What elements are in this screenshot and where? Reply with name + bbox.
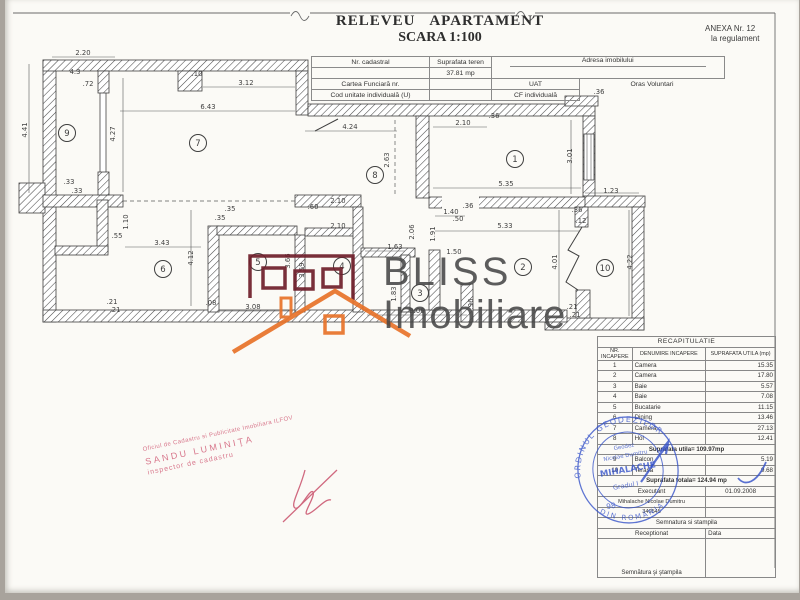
room-number: 6 [160,265,165,275]
room-number: 9 [64,129,69,139]
table-row: 1Camera15.35 [598,360,776,371]
dimension-label: .33 [64,178,75,186]
nr-cadastral-value [312,68,430,79]
title-block: RELEVEU APARTAMENT SCARA 1:100 [310,13,570,46]
dimension-label: .10 [192,70,203,78]
scanned-sheet: 2.204.3.724.414.273.126.43.10.33.334.242… [5,0,799,593]
dimension-label: .12 [576,217,587,225]
dimension-label: .96 [467,299,475,310]
table-row: 8Hol12.41 [598,434,776,445]
dimension-label: .36 [489,112,500,120]
dimension-label: 2.06 [408,224,416,239]
dimension-label: .33 [72,187,83,195]
label-uat: UAT [492,79,580,90]
wall-segment [55,246,108,255]
wall-segment [98,172,109,195]
wall-segment [295,195,361,207]
dimension-label: 2.10 [455,119,470,127]
door-swing [315,119,338,131]
room-number: 10 [600,264,611,274]
wall-segment [429,250,440,310]
cartea-funciara-value [430,79,492,90]
cf-individuala-value [580,90,725,101]
document-title: RELEVEU APARTAMENT [310,13,570,30]
dimension-label: 4.27 [109,126,117,141]
col-header-denumire: DENUMIRE INCAPERE [632,347,706,360]
label-nr-cadastral: Nr. cadastral [312,57,430,68]
wall-segment [98,71,109,93]
wall-segment [43,195,123,207]
dimension-label: 6.43 [200,103,215,111]
table-row: Suprafata utila= 109.97mp [598,444,776,455]
dimension-label: 1.23 [603,187,618,195]
table-row: 5Bucatarie11.15 [598,402,776,413]
table-row: Mihalache Nicolae Dumitru [598,497,776,508]
wall-segment [296,71,308,115]
anexa-line2: la regulament [705,34,785,44]
dimension-label: 3.08 [245,303,260,311]
dimension-label: 3.43 [154,239,169,247]
uat-value: Oras Voluntari [580,79,725,90]
table-row: 3Baie5.57 [598,381,776,392]
dimension-label: .36 [463,202,474,210]
cod-unitate-value [430,90,492,101]
dimension-label: 2.10 [330,222,345,230]
dimension-label: 1.63 [387,243,402,251]
dimension-label: .36 [572,206,583,214]
label-cartea-funciara: Cartea Funciară nr. [312,79,430,90]
room-number: 5 [255,258,260,268]
dimension-label: 2.63 [383,152,391,167]
recap-table: RECAPITULATIE NR. INCAPERE DENUMIRE INCA… [597,336,776,578]
dimension-label: .35 [225,205,236,213]
room-numbers: 12345678910 [59,125,614,302]
dimension-label: 3.01 [566,148,574,163]
wall-segment [217,226,297,235]
dimension-label: 1.50 [446,248,461,256]
suprafata-teren-value: 37.81 mp [430,68,492,79]
dimension-label: 4.22 [626,254,634,269]
anexa-line1: ANEXA Nr. 12 [705,24,785,34]
label-cf-individuala: CF individuală [492,90,580,101]
room-number: 3 [417,289,422,299]
room-number: 1 [512,155,517,165]
dimension-label: .35 [215,214,226,222]
table-row: 4Baie7.08 [598,392,776,403]
dimension-label: .72 [83,80,94,88]
wall-segment [308,104,595,116]
dimension-label: .50 [453,215,464,223]
wall-segment [19,183,45,213]
cadastral-info-table: Nr. cadastral Suprafata teren Adresa imo… [311,56,725,101]
signature-area-label: Semnătura şi ştampila [600,569,703,577]
frame-break-mark [291,12,309,21]
dimension-label: 4.24 [342,123,357,131]
table-row: 2Camera17.80 [598,371,776,382]
wall-segment [97,200,108,252]
col-header-suprafata: SUPRAFATA UTILA (mp) [706,347,776,360]
dimension-label: 3.12 [238,79,253,87]
table-row: 10Terasa9.68 [598,465,776,476]
room-number: 7 [195,139,200,149]
dimension-label: .55 [112,232,123,240]
dimension-label: .21 [567,303,578,311]
dimension-label: 4.01 [551,254,559,269]
table-row: Semnatura si stampila [598,518,776,529]
wall-segment [416,116,429,198]
wall-segment [401,255,410,312]
table-row: 9Balcon5.19 [598,455,776,466]
address-blank-line [510,66,706,67]
table-row: 7Camera27.13 [598,423,776,434]
dimension-label: 4.12 [187,250,195,265]
dimension-label: 1.10 [122,214,130,229]
balcony-opening [566,227,582,290]
col-header-nr: NR. INCAPERE [598,347,633,360]
table-row: 6Dining13.46 [598,413,776,424]
table-row: Semnătura şi ştampila [598,539,776,578]
table-row: Suprafata totala= 124.94 mp [598,476,776,487]
dimension-label: 4.41 [21,122,29,137]
logo-window [263,268,285,288]
table-row: 340545 [598,507,776,518]
dimension-label: 2.20 [75,49,90,57]
table-row: ReceptionatData [598,528,776,539]
anexa-note: ANEXA Nr. 12 la regulament [705,24,785,44]
dimension-label: 1.91 [429,226,437,241]
dimension-label: 2.10 [330,197,345,205]
wall-segment [583,196,645,207]
dimension-label: .21 [107,298,118,306]
window [584,134,594,180]
room-number: 2 [520,263,525,273]
label-adresa: Adresa imobilului [494,57,722,64]
dimension-label: .08 [206,299,217,307]
dimension-label: .21 [570,311,581,319]
address-box: Adresa imobilului [492,57,725,79]
dimension-label: 3.06 [409,307,424,315]
document-scale: SCARA 1:100 [310,30,570,46]
dimension-label: 4.3 [70,68,81,76]
label-suprafata-teren: Suprafata teren [430,57,492,68]
dimension-label: 5.35 [498,180,513,188]
wall-segment [43,60,308,71]
label-cod-unitate: Cod unitate individuală (U) [312,90,430,101]
dimension-label: 5.33 [497,222,512,230]
dimension-label: 1.83 [390,286,398,301]
dimension-label: .21 [110,306,121,314]
table-row: Executant01.09.2008 [598,486,776,497]
dimension-label: .60 [308,203,319,211]
recap-title: RECAPITULATIE [598,337,776,348]
room-number: 8 [372,171,377,181]
